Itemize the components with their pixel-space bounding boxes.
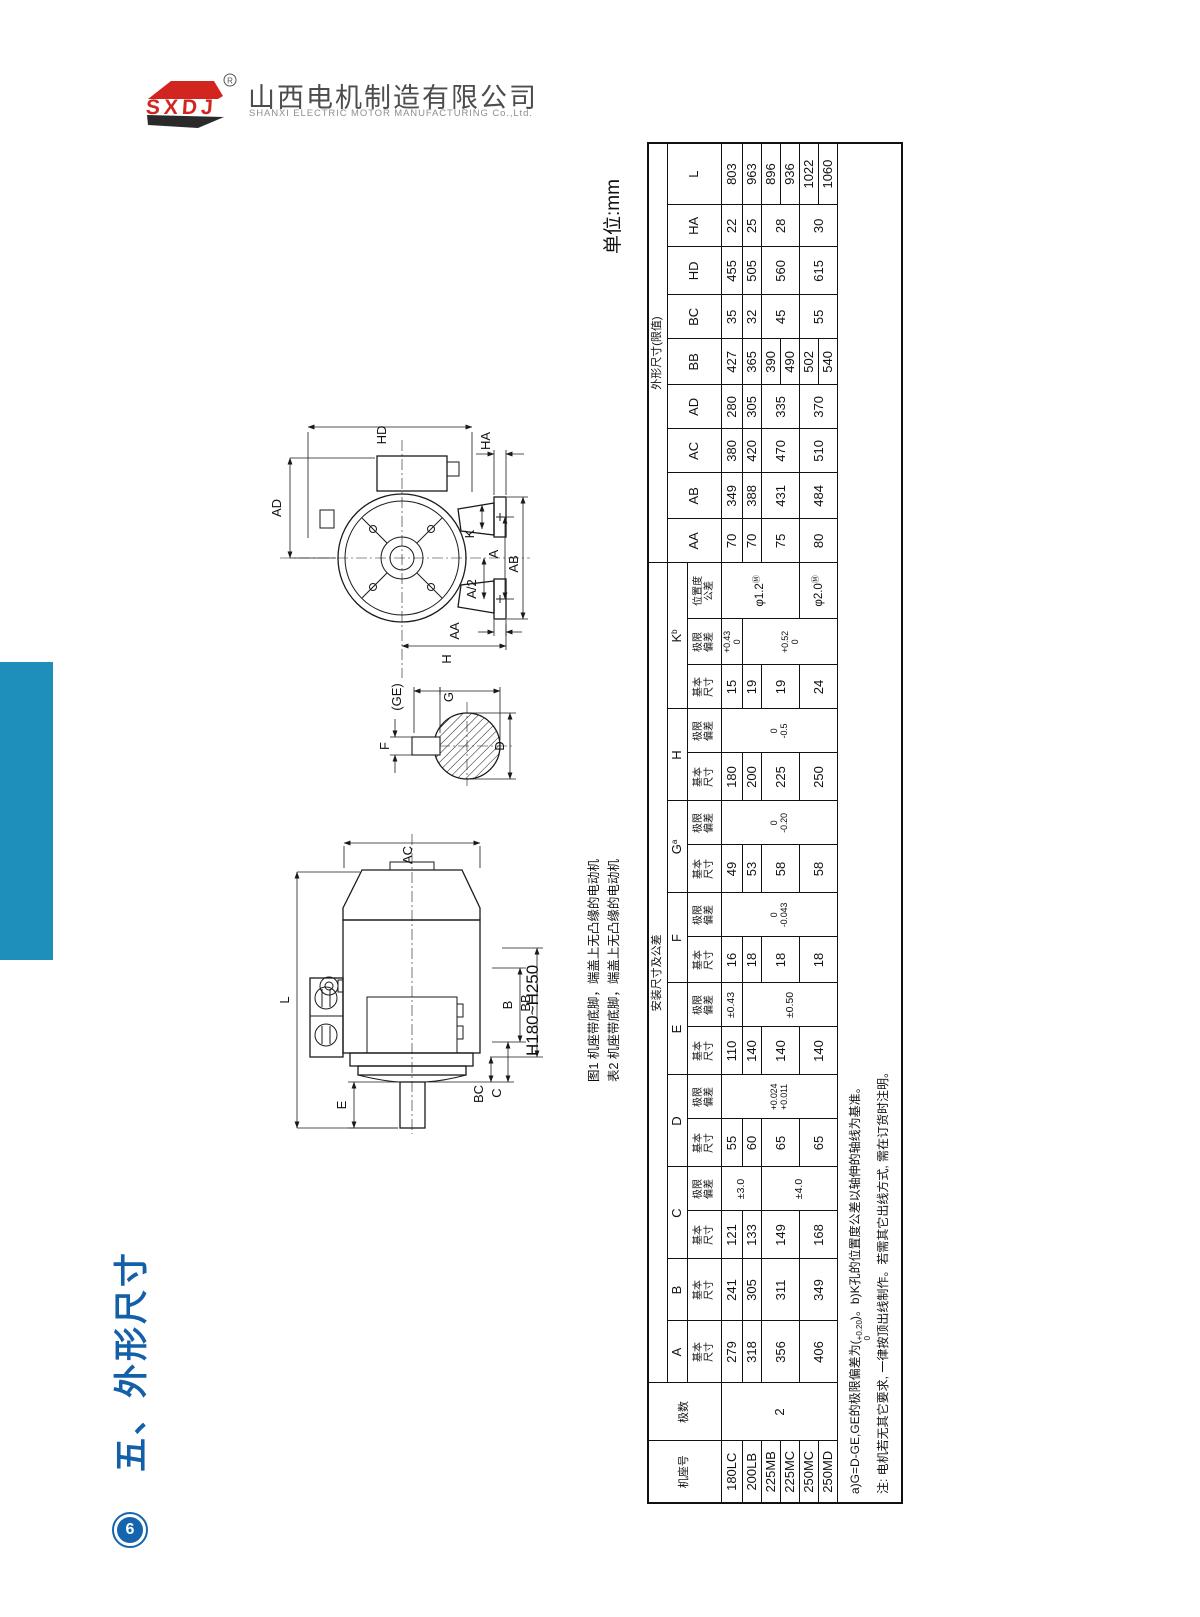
dim-label: K bbox=[462, 529, 477, 538]
catalog-page: SXDJ R 山西电机制造有限公司 SHANXI ELECTRIC MOTOR … bbox=[0, 0, 1200, 1617]
table-cell: 极限偏差 bbox=[687, 893, 721, 937]
table-cell: H bbox=[667, 709, 687, 801]
table-cell: 140 bbox=[800, 1027, 838, 1075]
dim-label: AA bbox=[447, 622, 462, 640]
dim-label: HA bbox=[478, 432, 493, 450]
table-header-row: 机座号极数安装尺寸及公差外形尺寸(限值) bbox=[648, 143, 667, 1503]
table-notes-row: a)G=D-GE,GE的极限偏差为(+0.200)。b)K孔的位置度公差以轴伸的… bbox=[838, 143, 902, 1503]
table-cell: F bbox=[667, 893, 687, 983]
note-line-1: a)G=D-GE,GE的极限偏差为(+0.200)。b)K孔的位置度公差以轴伸的… bbox=[845, 152, 873, 1494]
table-cell: 机座号 bbox=[648, 1441, 721, 1503]
table-cell: 896 bbox=[762, 143, 781, 205]
figure-end-view: HDADHAKAABA/2AAH(GE)GFD bbox=[262, 388, 548, 793]
table-cell: 70 bbox=[721, 519, 743, 563]
dimension-table: 机座号极数安装尺寸及公差外形尺寸(限值)ABCDEFGaHKbAAABACADB… bbox=[647, 142, 903, 1504]
table-cell: 基本尺寸 bbox=[687, 665, 721, 709]
table-cell: 1022 bbox=[800, 143, 819, 205]
table-cell: +0.430 bbox=[721, 619, 743, 665]
table-cell: 540 bbox=[819, 339, 838, 385]
end-view-dim-labels: HDADHAKAABA/2AAH(GE)GFD bbox=[269, 426, 521, 751]
table-cell: 484 bbox=[800, 473, 838, 519]
table-cell: 2 bbox=[721, 1383, 838, 1441]
table-cell: 311 bbox=[762, 1259, 800, 1321]
table-cell: 49 bbox=[721, 845, 743, 893]
table-cell: 24 bbox=[800, 665, 838, 709]
dim-label: AB bbox=[506, 555, 521, 572]
dim-label: D bbox=[492, 741, 507, 750]
table-cell: 110 bbox=[721, 1027, 743, 1075]
table-cell: 149 bbox=[762, 1211, 800, 1259]
table-cell: 65 bbox=[762, 1119, 800, 1167]
table-cell: 基本尺寸 bbox=[687, 937, 721, 983]
table-cell: 32 bbox=[743, 295, 762, 339]
table-cell: ±0.43 bbox=[721, 983, 743, 1027]
section-title-block: 五、外形尺寸 bbox=[104, 1222, 160, 1472]
dim-label: H bbox=[439, 654, 454, 663]
table-cell: φ1.2Ⓜ bbox=[721, 563, 800, 619]
table-cell: 基本尺寸 bbox=[687, 1119, 721, 1167]
table-cell: AC bbox=[667, 429, 721, 473]
table-cell: L bbox=[667, 143, 721, 205]
table-cell: 390 bbox=[762, 339, 781, 385]
dim-label: BC bbox=[471, 1085, 486, 1103]
dim-label: AC bbox=[400, 846, 415, 864]
company-logo: SXDJ R 山西电机制造有限公司 SHANXI ELECTRIC MOTOR … bbox=[128, 64, 508, 144]
table-cell: 0-0.20 bbox=[721, 801, 838, 845]
table-cell: 18 bbox=[743, 937, 762, 983]
table-cell: ±3.0 bbox=[721, 1167, 762, 1211]
table-cell: +0.024+0.011 bbox=[721, 1075, 838, 1119]
table-cell: 35 bbox=[721, 295, 743, 339]
captions-block: 图1 机座带底脚，端盖上无凸缘的电动机 表2 机座带底脚，端盖上无凸缘的电动机 bbox=[584, 812, 628, 1082]
side-view-outline bbox=[310, 862, 480, 1128]
table-cell: 380 bbox=[721, 429, 743, 473]
table-cell: 200LB bbox=[743, 1441, 762, 1503]
table-cell: 极限偏差 bbox=[687, 709, 721, 753]
table-cell: 180 bbox=[721, 753, 743, 801]
dim-label: L bbox=[277, 996, 292, 1003]
table-cell: 427 bbox=[721, 339, 743, 385]
table-cell: 60 bbox=[743, 1119, 762, 1167]
table-cell: 168 bbox=[800, 1211, 838, 1259]
table-cell: 55 bbox=[721, 1119, 743, 1167]
table-cell: AB bbox=[667, 473, 721, 519]
table-cell: 305 bbox=[743, 385, 762, 429]
dim-label: E bbox=[334, 1100, 349, 1109]
table-cell: 基本尺寸 bbox=[687, 1321, 721, 1383]
table-cell: AD bbox=[667, 385, 721, 429]
figure1-caption: 图1 机座带底脚，端盖上无凸缘的电动机 bbox=[584, 812, 604, 1082]
table-cell: 25 bbox=[743, 205, 762, 247]
table-cell: 0-0.043 bbox=[721, 893, 838, 937]
table-cell: φ2.0Ⓜ bbox=[800, 563, 838, 619]
table-cell: 305 bbox=[743, 1259, 762, 1321]
table-cell: 基本尺寸 bbox=[687, 753, 721, 801]
table-cell: 58 bbox=[762, 845, 800, 893]
dimension-table-block: 机座号极数安装尺寸及公差外形尺寸(限值)ABCDEFGaHKbAAABACADB… bbox=[647, 140, 903, 1504]
table-cell: 极数 bbox=[648, 1383, 721, 1441]
table-cell: 121 bbox=[721, 1211, 743, 1259]
table-cell: BC bbox=[667, 295, 721, 339]
table-cell: 基本尺寸 bbox=[687, 1027, 721, 1075]
table-cell: 65 bbox=[800, 1119, 838, 1167]
dim-label: G bbox=[441, 692, 456, 702]
table-cell: A bbox=[667, 1321, 687, 1383]
table-cell: 18 bbox=[762, 937, 800, 983]
table-cell: 250 bbox=[800, 753, 838, 801]
table-cell: 18 bbox=[800, 937, 838, 983]
figure-side-view: ACLBBBCBCE bbox=[262, 828, 554, 1145]
unit-label-block: 单位:mm bbox=[598, 138, 628, 254]
table-notes-cell: a)G=D-GE,GE的极限偏差为(+0.200)。b)K孔的位置度公差以轴伸的… bbox=[838, 143, 902, 1503]
table-cell: 505 bbox=[743, 247, 762, 295]
table-cell: 45 bbox=[762, 295, 800, 339]
table-cell: 安装尺寸及公差 bbox=[648, 563, 667, 1383]
table-cell: 22 bbox=[721, 205, 743, 247]
table-cell: 外形尺寸(限值) bbox=[648, 143, 667, 563]
table-cell: 250MC bbox=[800, 1441, 819, 1503]
table-cell: 58 bbox=[800, 845, 838, 893]
table-cell: 225 bbox=[762, 753, 800, 801]
table-cell: 19 bbox=[743, 665, 762, 709]
dim-label: B bbox=[500, 1001, 515, 1010]
table-cell: C bbox=[667, 1167, 687, 1259]
table-cell: +0.520 bbox=[743, 619, 838, 665]
table-cell: Ga bbox=[667, 801, 687, 893]
table-cell: 279 bbox=[721, 1321, 743, 1383]
frame-range-label: H180~H250 bbox=[523, 922, 553, 1056]
table-cell: 16 bbox=[721, 937, 743, 983]
table-cell: 基本尺寸 bbox=[687, 845, 721, 893]
table-cell: 极限偏差 bbox=[687, 1167, 721, 1211]
table-cell: 420 bbox=[743, 429, 762, 473]
table-cell: 75 bbox=[762, 519, 800, 563]
table-cell: 455 bbox=[721, 247, 743, 295]
sxdj-logo-icon: SXDJ R bbox=[128, 64, 243, 134]
table-cell: 388 bbox=[743, 473, 762, 519]
table-cell: 1060 bbox=[819, 143, 838, 205]
dim-label: HD bbox=[374, 426, 389, 445]
table-cell: 基本尺寸 bbox=[687, 1211, 721, 1259]
table-cell: 55 bbox=[800, 295, 838, 339]
table-cell: HA bbox=[667, 205, 721, 247]
table-cell: 70 bbox=[743, 519, 762, 563]
table-cell: 位置度公差 bbox=[687, 563, 721, 619]
table-cell: 极限偏差 bbox=[687, 619, 721, 665]
table-cell: 180LC bbox=[721, 1441, 743, 1503]
table-cell: 225MC bbox=[781, 1441, 800, 1503]
logo-brand-text: SXDJ bbox=[145, 96, 217, 119]
table-cell: 极限偏差 bbox=[687, 983, 721, 1027]
table-cell: D bbox=[667, 1075, 687, 1167]
table-cell: 140 bbox=[762, 1027, 800, 1075]
table-cell: 560 bbox=[762, 247, 800, 295]
table-cell: 极限偏差 bbox=[687, 1075, 721, 1119]
table-row: 180LC2279241121±3.055+0.024+0.011110±0.4… bbox=[721, 143, 743, 1503]
table-cell: 370 bbox=[800, 385, 838, 429]
table-cell: ±0.50 bbox=[743, 983, 838, 1027]
table-cell: 15 bbox=[721, 665, 743, 709]
table-header-row: ABCDEFGaHKbAAABACADBBBCHDHAL bbox=[667, 143, 687, 1503]
table-cell: 基本尺寸 bbox=[687, 1259, 721, 1321]
frame-range-block: H180~H250 bbox=[523, 922, 553, 1056]
table-cell: 510 bbox=[800, 429, 838, 473]
table-cell: AA bbox=[667, 519, 721, 563]
table-cell: 349 bbox=[800, 1259, 838, 1321]
dim-label: A bbox=[486, 549, 501, 558]
unit-label: 单位:mm bbox=[598, 138, 628, 254]
table-cell: ±4.0 bbox=[762, 1167, 838, 1211]
side-accent-bar bbox=[0, 662, 53, 960]
table-cell: 406 bbox=[800, 1321, 838, 1383]
page-number: 6 bbox=[117, 1517, 143, 1543]
dim-label: C bbox=[489, 1088, 504, 1097]
table-cell: 0-0.5 bbox=[721, 709, 838, 753]
logo-reg-mark: R bbox=[227, 77, 233, 86]
company-name-en: SHANXI ELECTRIC MOTOR MANUFACTURING Co.,… bbox=[249, 108, 533, 119]
dim-label: A/2 bbox=[464, 579, 479, 599]
table-cell: 140 bbox=[743, 1027, 762, 1075]
table-cell: 80 bbox=[800, 519, 838, 563]
table-cell: E bbox=[667, 983, 687, 1075]
table-cell: 30 bbox=[800, 205, 838, 247]
table-cell: 431 bbox=[762, 473, 800, 519]
table-cell: 615 bbox=[800, 247, 838, 295]
dim-label: AD bbox=[269, 499, 284, 517]
table-cell: 365 bbox=[743, 339, 762, 385]
table-cell: HD bbox=[667, 247, 721, 295]
dim-label: (GE) bbox=[389, 683, 404, 710]
dimension-lines bbox=[297, 843, 543, 1128]
table-cell: 356 bbox=[762, 1321, 800, 1383]
table-cell: 335 bbox=[762, 385, 800, 429]
page-number-badge: 6 bbox=[112, 1512, 148, 1548]
table-cell: B bbox=[667, 1259, 687, 1321]
table-cell: BB bbox=[667, 339, 721, 385]
table-cell: 318 bbox=[743, 1321, 762, 1383]
dim-label: F bbox=[377, 742, 392, 750]
table-cell: 225MB bbox=[762, 1441, 781, 1503]
table-cell: 502 bbox=[800, 339, 819, 385]
table-cell: 280 bbox=[721, 385, 743, 429]
table-cell: 936 bbox=[781, 143, 800, 205]
table-cell: Kb bbox=[667, 563, 687, 709]
table-cell: 19 bbox=[762, 665, 800, 709]
table-cell: 349 bbox=[721, 473, 743, 519]
table-cell: 241 bbox=[721, 1259, 743, 1321]
table2-caption: 表2 机座带底脚，端盖上无凸缘的电动机 bbox=[604, 812, 624, 1082]
table-cell: 极限偏差 bbox=[687, 801, 721, 845]
table-cell: 963 bbox=[743, 143, 762, 205]
shaft-section-detail bbox=[412, 713, 500, 779]
page-title: 五、外形尺寸 bbox=[104, 1222, 160, 1472]
table-cell: 53 bbox=[743, 845, 762, 893]
table-cell: 133 bbox=[743, 1211, 762, 1259]
table-cell: 200 bbox=[743, 753, 762, 801]
table-cell: 28 bbox=[762, 205, 800, 247]
table-cell: 250MD bbox=[819, 1441, 838, 1503]
table-cell: 803 bbox=[721, 143, 743, 205]
table-cell: 490 bbox=[781, 339, 800, 385]
note-line-2: 注: 电机若无其它要求, 一律按顶出线制作。若需其它出线方式, 需在订货时注明。 bbox=[873, 152, 894, 1494]
table-cell: 470 bbox=[762, 429, 800, 473]
